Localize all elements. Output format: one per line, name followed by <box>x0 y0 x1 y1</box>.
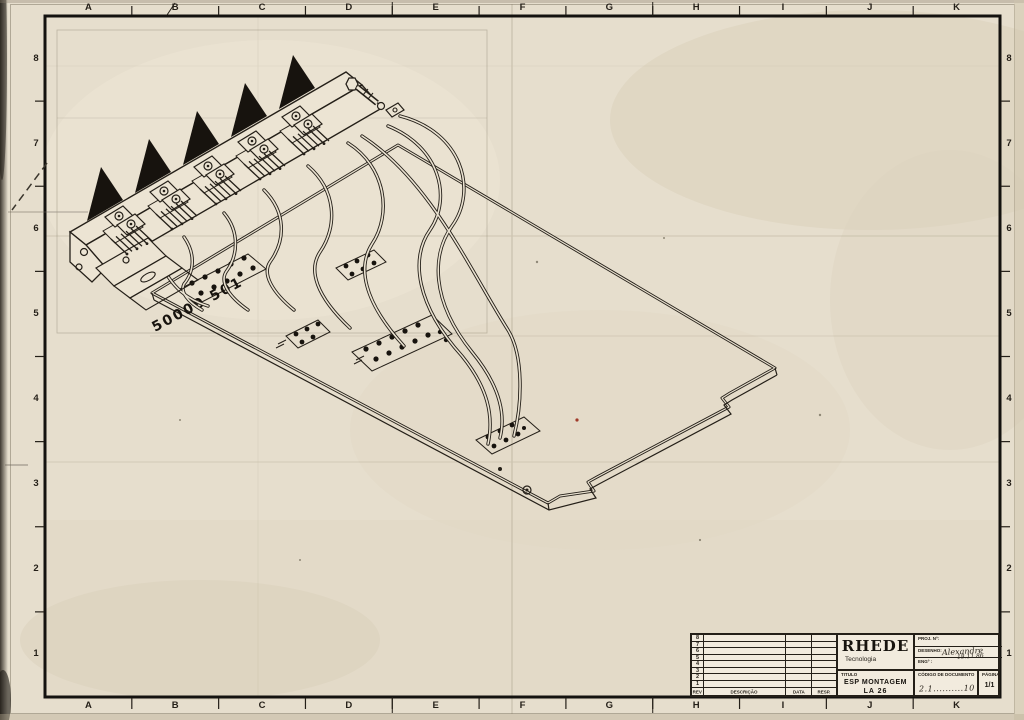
company-logo: RHEDE <box>838 637 913 655</box>
grid-col-label: K <box>948 700 966 711</box>
grid-col-label: K <box>948 2 966 13</box>
grid-col-label: G <box>600 2 618 13</box>
resp-header: RESP. <box>818 689 831 694</box>
grid-col-label: A <box>79 700 97 711</box>
data-header: DATA <box>793 689 805 694</box>
grid-col-label: E <box>427 2 445 13</box>
descricao-header: DESCRIÇÃO <box>731 689 758 694</box>
grid-row-label: 8 <box>27 53 45 64</box>
pagina-value: 1/1 <box>979 682 1000 689</box>
codigo-label: CÓDIGO DE DOCUMENTO <box>918 672 974 677</box>
drawing-title: ESP MONTAGEM <box>838 679 913 686</box>
company-block: RHEDE Tecnologia <box>838 635 915 669</box>
grid-row-label: 3 <box>27 478 45 489</box>
grid-row-label: 1 <box>27 648 45 659</box>
grid-col-label: C <box>253 700 271 711</box>
title-block: 87654321 REV DESCRIÇÃO DATA RESP. RHEDE … <box>690 633 1000 697</box>
drawing-subtitle: LA 26 <box>838 688 913 695</box>
eng-label: ENGº : <box>918 659 932 664</box>
grid-col-label: J <box>861 2 879 13</box>
grid-row-label: 7 <box>1000 138 1018 149</box>
grid-row-label: 5 <box>1000 308 1018 319</box>
grid-col-label: H <box>687 700 705 711</box>
grid-col-label: C <box>253 2 271 13</box>
revision-table-header: REV DESCRIÇÃO DATA RESP. <box>692 687 836 695</box>
document-code-block: CÓDIGO DE DOCUMENTO 2.1..........10 <box>915 669 979 695</box>
rev-header: REV <box>693 690 702 693</box>
assembly-drawing: 50000 501 <box>0 0 1024 720</box>
page-number-block: PÁGINA 1/1 <box>979 669 1000 695</box>
grid-col-label: G <box>600 700 618 711</box>
grid-col-label: B <box>166 700 184 711</box>
grid-row-label: 4 <box>27 393 45 404</box>
grid-row-label: 2 <box>27 563 45 574</box>
grid-row-label: 2 <box>1000 563 1018 574</box>
grid-col-label: F <box>514 2 532 13</box>
grid-col-label: I <box>774 2 792 13</box>
blueprint-sheet: 50000 501 <box>0 0 1024 720</box>
grid-col-label: J <box>861 700 879 711</box>
grid-row-label: 5 <box>27 308 45 319</box>
grid-col-label: H <box>687 2 705 13</box>
grid-row-label: 8 <box>1000 53 1018 64</box>
grid-row-label: 6 <box>27 223 45 234</box>
grid-col-label: D <box>340 700 358 711</box>
grid-col-label: E <box>427 700 445 711</box>
grid-row-label: 3 <box>1000 478 1018 489</box>
grid-col-label: F <box>514 700 532 711</box>
grid-col-label: B <box>166 2 184 13</box>
grid-row-label: 1 <box>1000 648 1018 659</box>
grid-row-label: 7 <box>27 138 45 149</box>
revision-table: 87654321 REV DESCRIÇÃO DATA RESP. <box>692 635 838 695</box>
grid-row-label: 6 <box>1000 223 1018 234</box>
desenho-label: DESENHO: <box>918 648 942 653</box>
codigo-value: 2.1..........10 <box>919 684 975 694</box>
grid-row-label: 4 <box>1000 393 1018 404</box>
titulo-label: TITULO <box>841 672 857 677</box>
approval-fields: PROJ. Nº: DESENHO: Alexandre 18.11.86 EN… <box>915 635 1002 669</box>
pagina-label: PÁGINA <box>982 672 1000 677</box>
company-tagline: Tecnologia <box>845 656 913 663</box>
titulo-block: TITULO ESP MONTAGEM LA 26 <box>838 669 915 695</box>
grid-col-label: D <box>340 2 358 13</box>
proj-label: PROJ. Nº: <box>918 636 939 641</box>
grid-col-label: A <box>79 2 97 13</box>
grid-col-label: I <box>774 700 792 711</box>
